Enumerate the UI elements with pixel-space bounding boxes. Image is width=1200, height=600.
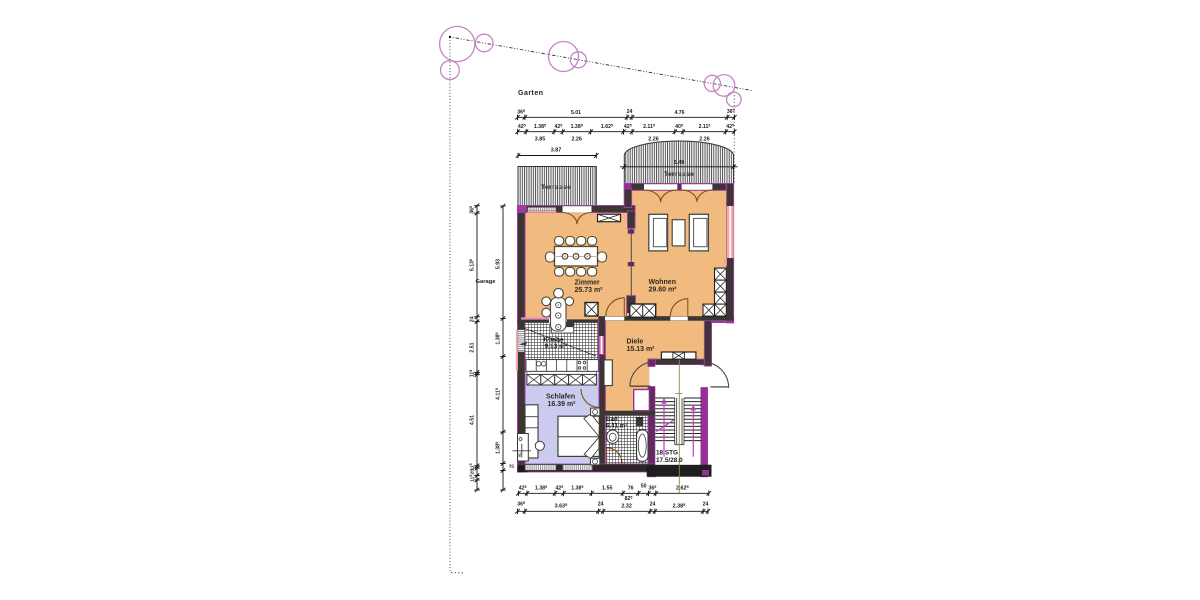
svg-text:5.93: 5.93 (496, 259, 502, 269)
svg-text:29.60 m²: 29.60 m² (649, 287, 678, 294)
svg-text:4.76: 4.76 (674, 110, 684, 116)
svg-text:Wohnen: Wohnen (649, 279, 676, 286)
svg-text:Terrasse: Terrasse (541, 184, 571, 191)
svg-text:Schlafen: Schlafen (546, 394, 575, 401)
svg-text:6.41 m²: 6.41 m² (606, 422, 627, 429)
svg-text:25.73 m²: 25.73 m² (575, 287, 604, 294)
svg-text:18 STG: 18 STG (656, 450, 678, 457)
svg-text:Diele: Diele (627, 339, 644, 346)
svg-text:Zimmer: Zimmer (575, 280, 601, 287)
svg-text:24: 24 (598, 501, 604, 507)
svg-text:1.55: 1.55 (602, 485, 613, 491)
svg-text:4.51: 4.51 (470, 415, 476, 425)
svg-text:3.85: 3.85 (535, 137, 546, 143)
svg-text:16.39 m²: 16.39 m² (548, 401, 577, 408)
svg-text:31: 31 (509, 464, 515, 470)
svg-text:5.01: 5.01 (571, 110, 581, 116)
svg-text:24: 24 (627, 109, 633, 115)
svg-text:17.5/28.0: 17.5/28.0 (656, 457, 683, 464)
svg-text:50: 50 (641, 483, 647, 489)
svg-text:Terrasse: Terrasse (664, 171, 694, 178)
svg-text:25: 25 (470, 469, 476, 475)
svg-text:RC: RC (518, 452, 522, 457)
svg-text:Garage: Garage (476, 279, 497, 285)
svg-text:24: 24 (470, 316, 476, 322)
svg-text:24: 24 (650, 501, 656, 507)
svg-text:3.87: 3.87 (551, 148, 562, 154)
svg-text:Garten: Garten (518, 90, 544, 97)
svg-text:15.13 m²: 15.13 m² (627, 346, 656, 353)
svg-text:9.13 m²: 9.13 m² (545, 343, 569, 350)
svg-text:76: 76 (628, 485, 634, 491)
svg-text:2.32: 2.32 (621, 503, 632, 509)
svg-text:2.26: 2.26 (571, 137, 582, 143)
svg-text:24: 24 (703, 501, 709, 507)
svg-text:2.51: 2.51 (470, 342, 476, 352)
svg-text:5.49: 5.49 (674, 160, 685, 166)
